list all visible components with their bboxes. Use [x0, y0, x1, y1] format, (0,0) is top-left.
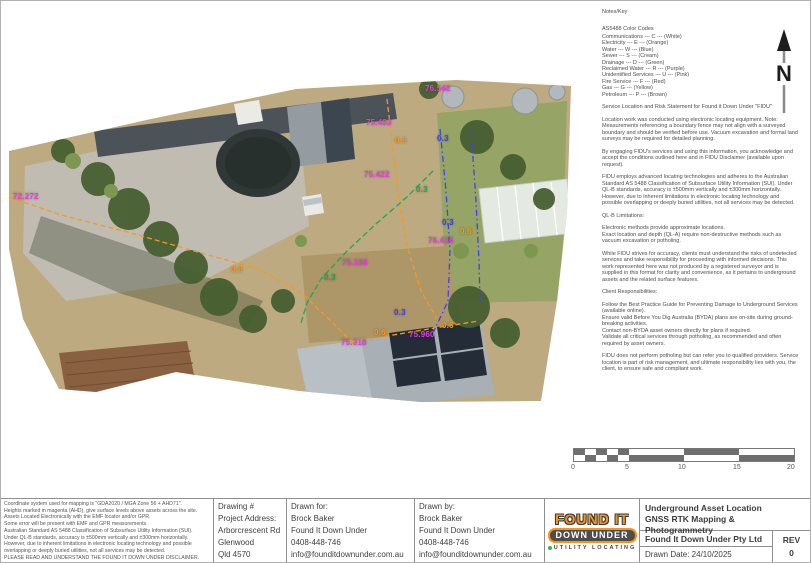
disclaimer-line: Some error will be present with EMF and … — [4, 521, 210, 528]
logo-found-it: FOUND IT — [555, 511, 629, 527]
scale-label: 0 — [571, 464, 575, 471]
color-code-line: Petroleum --- P --- (Brown) — [602, 92, 799, 98]
project-line: Arborcrescent Rd — [218, 525, 282, 537]
notes-paragraph: Service Location and Risk Statement for … — [602, 104, 799, 111]
color-codes-list: Communications --- C --- (White)Electric… — [602, 34, 799, 98]
project-line: Project Address: — [218, 513, 282, 525]
notes-paragraph: By engaging FIDU's services and using th… — [602, 149, 799, 169]
drawn-by-line: Found It Down Under — [419, 525, 540, 537]
notes-paragraph: While FIDU strives for accuracy, clients… — [602, 251, 799, 284]
disclaimer-cell: Coordinate system used for mapping is "G… — [1, 499, 213, 563]
color-codes-title: AS5488 Color Codes — [602, 26, 799, 33]
notes-paragraph: FIDU does not perform potholing but can … — [602, 353, 799, 373]
notes-paragraph: FIDU employs advanced locating technolog… — [602, 174, 799, 207]
drawn-for-cell: Drawn for:Brock BakerFound It Down Under… — [286, 499, 414, 563]
project-line: Glenwood — [218, 537, 282, 549]
project-line: Drawing # — [218, 501, 282, 513]
scale-bar: 05101520 — [573, 448, 794, 474]
disclaimer-line: Australian Standard AS 5488 Classificati… — [4, 528, 210, 535]
scale-bar-row — [574, 455, 794, 461]
drawn-by-line: 0408-448-746 — [419, 537, 540, 549]
scale-bar-labels: 05101520 — [573, 464, 794, 474]
rev-label: REV — [773, 534, 810, 547]
map-area: 72.27276.54275.4830.60.375.4220.30.30.67… — [1, 1, 601, 498]
notes-paragraph: Electronic methods provide approximate l… — [602, 225, 799, 245]
drawn-date: Drawn Date: 24/10/2025 — [640, 548, 782, 561]
drawn-for-line: Brock Baker — [291, 513, 410, 525]
drawing-info-cell: Underground Asset Location GNSS RTK Mapp… — [639, 499, 810, 563]
drawn-for-line: info@founditdownunder.com.au — [291, 549, 410, 561]
disclaimer-line: PLEASE READ AND UNDERSTAND THE FOUND IT … — [4, 555, 210, 562]
disclaimer-line: Heights marked in magenta (AHD), give su… — [4, 508, 210, 515]
scale-label: 15 — [733, 464, 741, 471]
rev-value: 0 — [773, 547, 810, 560]
disclaimer-line: Coordinate system used for mapping is "G… — [4, 501, 210, 508]
logo-cell: FOUND IT DOWN UNDER UTILITY LOCATING — [544, 499, 639, 563]
drawn-by-line: info@founditdownunder.com.au — [419, 549, 540, 561]
logo-utility-locating: UTILITY LOCATING — [548, 545, 637, 551]
drawn-by-line: Drawn by: — [419, 501, 540, 513]
notes-paragraph: Client Responsibilities: — [602, 289, 799, 296]
disclaimer-line: overlapping or deeply buried utilities, … — [4, 548, 210, 555]
disclaimer-line: However, due to inherent limitations in … — [4, 541, 210, 548]
project-address-cell: Drawing #Project Address:Arborcrescent R… — [213, 499, 286, 563]
project-line: Qld 4570 — [218, 549, 282, 561]
drawn-by-line: Brock Baker — [419, 513, 540, 525]
drawn-for-line: Found It Down Under — [291, 525, 410, 537]
drawn-for-line: Drawn for: — [291, 501, 410, 513]
drawn-by-cell: Drawn by:Brock BakerFound It Down Under0… — [414, 499, 544, 563]
notes-panel: Notes/Key AS5488 Color Codes Communicati… — [602, 9, 799, 373]
aerial-photo — [1, 1, 601, 498]
drawing-sheet: 72.27276.54275.4830.60.375.4220.30.30.67… — [0, 0, 811, 563]
disclaimer-line: Assets Located Electronically with the E… — [4, 514, 210, 521]
notes-heading: Notes/Key — [602, 9, 799, 16]
notes-paragraph: QL-B Limitations: — [602, 213, 799, 220]
scale-label: 20 — [787, 464, 795, 471]
scale-bar-graphic — [573, 448, 795, 462]
notes-paragraph: Location work was conducted using electr… — [602, 117, 799, 143]
title-block: Coordinate system used for mapping is "G… — [1, 498, 810, 563]
logo-utility-text: UTILITY LOCATING — [554, 545, 637, 551]
logo-down-under: DOWN UNDER — [548, 528, 637, 543]
logo-pin-icon — [548, 546, 552, 550]
drawing-title-line1: Underground Asset Location — [645, 503, 805, 514]
company-name: Found It Down Under Pty Ltd — [640, 532, 772, 547]
revision-cell: REV 0 — [772, 531, 810, 563]
drawing-title: Underground Asset Location GNSS RTK Mapp… — [640, 499, 810, 531]
disclaimer-line: Under QL-B standards, accuracy is ±500mm… — [4, 535, 210, 542]
scale-label: 10 — [678, 464, 686, 471]
notes-paragraph: Follow the Best Practice Guide for Preve… — [602, 302, 799, 348]
notes-sections: Service Location and Risk Statement for … — [602, 104, 799, 373]
scale-label: 5 — [625, 464, 629, 471]
drawn-for-line: 0408-448-746 — [291, 537, 410, 549]
